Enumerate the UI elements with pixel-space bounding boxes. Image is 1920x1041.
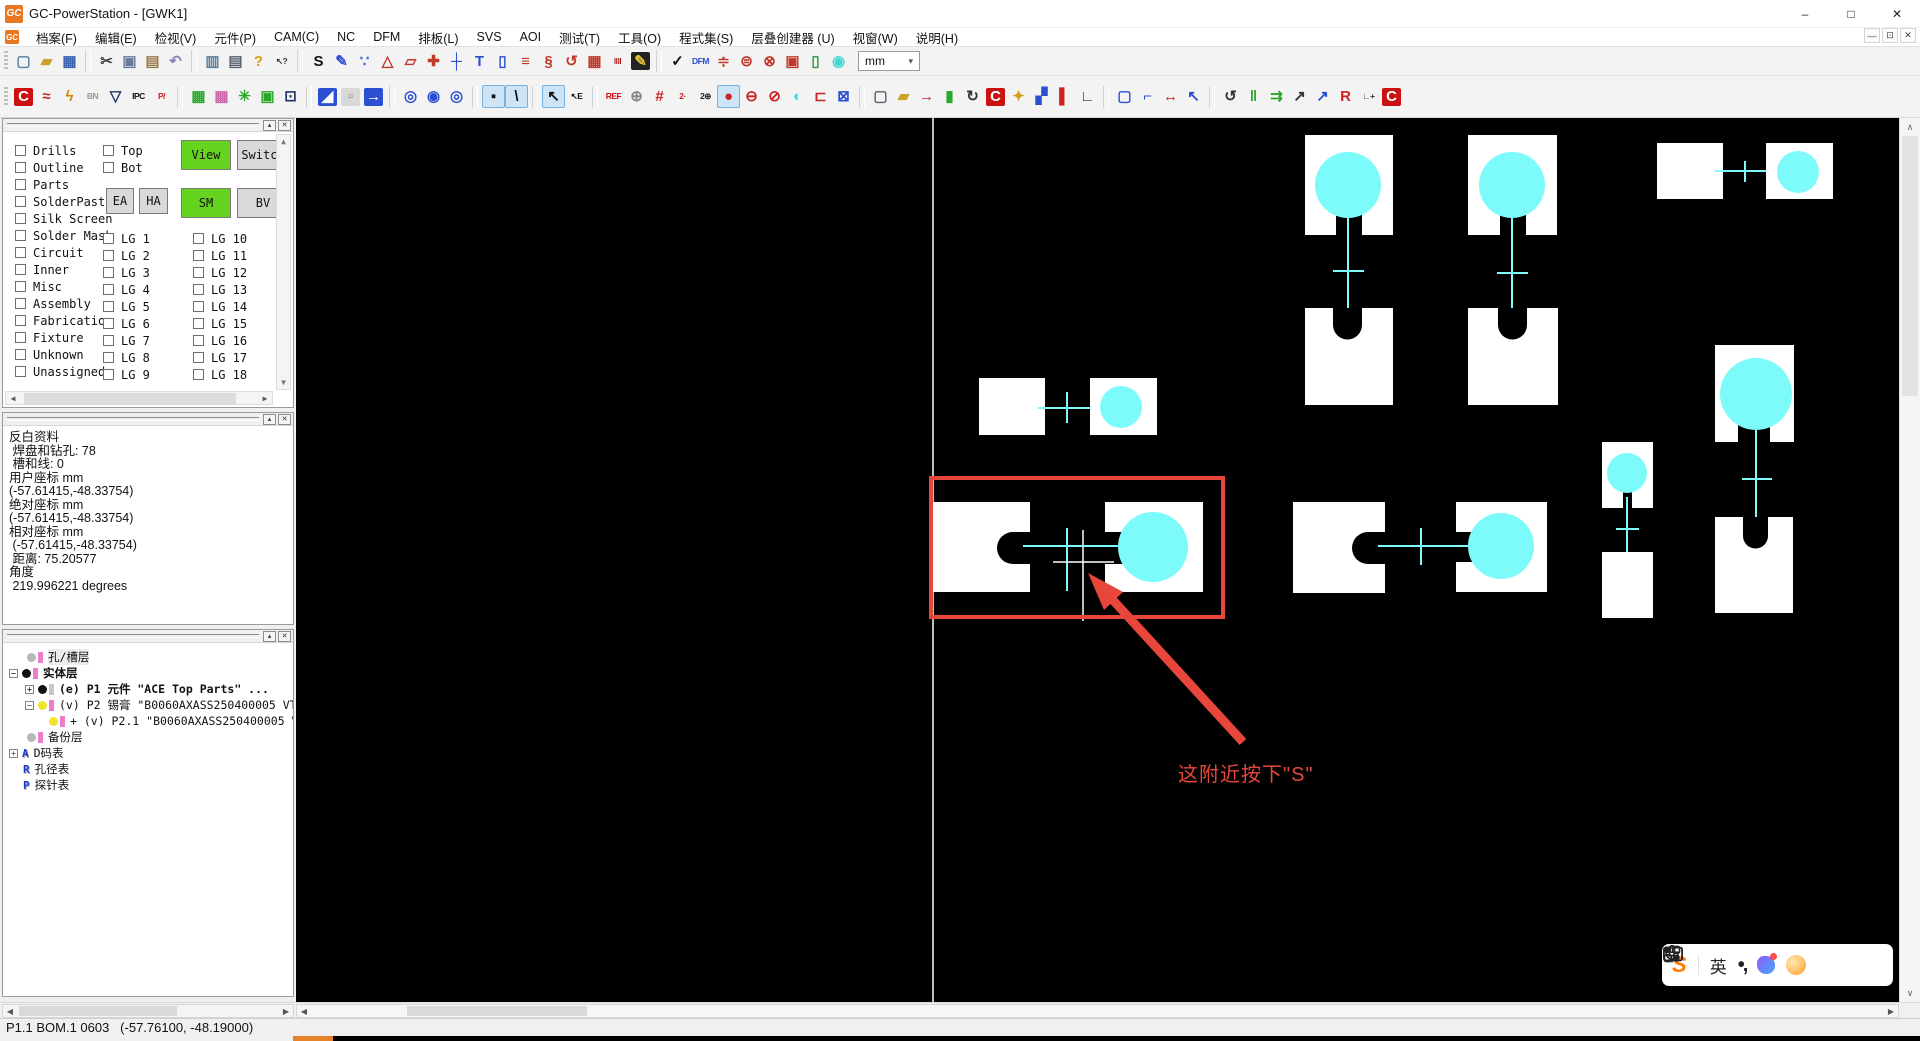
panel-grip[interactable] (7, 123, 259, 127)
pad-fill-cyan-button[interactable]: ◐ (786, 85, 809, 108)
barcode-button[interactable]: ‖‖ (606, 50, 629, 73)
collapse-minus-icon[interactable]: − (9, 669, 18, 678)
scrollbar-thumb[interactable] (1902, 136, 1918, 396)
scroll-right-icon[interactable]: ▶ (1884, 1005, 1898, 1017)
toolbar-main: ▢▰▦✂▣▤↶▥▤?↖?S✎∵△▱✚┼T▯≡§↺▦‖‖✎✓DFM≑⊜⊗▣▯◉ m… (0, 46, 1920, 76)
menu-part[interactable]: 元件(P) (205, 28, 265, 46)
checkbox-box[interactable] (15, 281, 26, 292)
layer-solderpaste-checkbox[interactable]: SolderPaste (15, 193, 112, 210)
checkbox-box[interactable] (15, 196, 26, 207)
mdi-restore-button[interactable]: ⊡ (1882, 28, 1898, 43)
layer-silk-screen-checkbox[interactable]: Silk Screen (15, 210, 112, 227)
layer-tree-panel: ▴ ✕ 孔/槽层 − 实体层 + (2, 629, 294, 997)
save-button[interactable]: ▦ (58, 50, 81, 73)
expand-plus-icon[interactable]: + (25, 685, 34, 694)
layer-misc-checkbox[interactable]: Misc (15, 278, 112, 295)
scroll-right-icon[interactable]: ▶ (258, 392, 272, 404)
layer-dot-icon (49, 717, 58, 726)
scroll-up-icon[interactable]: ▲ (277, 135, 290, 148)
menu-edit[interactable]: 编辑(E) (86, 28, 146, 46)
lg-left-list: LG 1LG 2LG 3LG 4LG 5LG 6LG 7LG 8LG 9 (103, 230, 150, 383)
c-net-button[interactable]: C (14, 88, 33, 106)
menubar: GC 档案(F)编辑(E)检视(V)元件(P)CAM(C)NCDFM排板(L)S… (0, 28, 1920, 46)
layer-category-list: DrillsOutlinePartsSolderPasteSilk Screen… (15, 142, 112, 380)
lg-2-checkbox[interactable]: LG 2 (103, 247, 150, 264)
layer-bar-icon (33, 668, 38, 679)
panel-grip[interactable] (7, 417, 259, 421)
scroll-down-icon[interactable]: ∨ (1901, 985, 1919, 1001)
cut-button[interactable]: ✂ (95, 50, 118, 73)
ipc-export-button[interactable]: IPC (127, 85, 150, 108)
chevron-down-icon: ▾ (908, 56, 913, 67)
layers-horizontal-scrollbar[interactable]: ◀ ▶ (5, 391, 273, 405)
spark-button[interactable]: ϟ (58, 85, 81, 108)
minimize-button[interactable]: – (1782, 0, 1828, 28)
toolbox-grid-icon[interactable] (1662, 944, 1682, 964)
copy-button[interactable]: ▣ (118, 50, 141, 73)
toolbar-separator (592, 86, 598, 108)
scroll-left-icon[interactable]: ◀ (3, 1005, 17, 1017)
inspect-pad-button[interactable]: ⊡ (279, 85, 302, 108)
scrollbar-thumb[interactable] (19, 1006, 177, 1016)
app-logo-icon: GC (5, 5, 23, 23)
checkbox-box[interactable] (15, 230, 26, 241)
lg-15-checkbox[interactable]: LG 15 (193, 315, 247, 332)
close-button[interactable]: ✕ (1874, 0, 1920, 28)
lg-3-checkbox[interactable]: LG 3 (103, 264, 150, 281)
text-tool-button[interactable]: T (468, 50, 491, 73)
scroll-up-icon[interactable]: ∧ (1901, 119, 1919, 135)
scrollbar-thumb[interactable] (407, 1006, 587, 1016)
status-text: P1.1 BOM.1 0603 (-57.76100, -48.19000) (0, 1020, 253, 1035)
lg-5-checkbox[interactable]: LG 5 (103, 298, 150, 315)
new-doc-button[interactable]: ▢ (869, 85, 892, 108)
layer-fixture-checkbox[interactable]: Fixture (15, 329, 112, 346)
checkbox-box[interactable] (193, 250, 204, 261)
workspace: ▴ ✕ DrillsOutlinePartsSolderPasteSilk Sc… (0, 118, 1920, 1002)
layer-bar-icon (38, 652, 43, 663)
panel-array-alt-button[interactable]: ▦ (210, 85, 233, 108)
import-door-button[interactable]: → (915, 85, 938, 108)
lg-7-checkbox[interactable]: LG 7 (103, 332, 150, 349)
tree-item-p2-1[interactable]: + (v) P2.1 "B0060AXASS250400005 V. (3, 713, 293, 729)
panel-close-button[interactable]: ✕ (278, 414, 291, 425)
view-full-button[interactable]: ◢ (318, 88, 337, 106)
target2-button[interactable]: 2⊕ (694, 85, 717, 108)
draw-pencil-button[interactable]: ✎ (330, 50, 353, 73)
lg-11-checkbox[interactable]: LG 11 (193, 247, 247, 264)
menu-cam[interactable]: CAM(C) (265, 28, 328, 46)
lg-18-checkbox[interactable]: LG 18 (193, 366, 247, 383)
window-title: GC-PowerStation - [GWK1] (29, 6, 187, 21)
strip-orange (293, 1036, 333, 1041)
net-compare-button[interactable]: ≈ (35, 85, 58, 108)
lg-6-checkbox[interactable]: LG 6 (103, 315, 150, 332)
checkbox-box[interactable] (103, 318, 114, 329)
transform-handles-button[interactable]: ↔ (1159, 85, 1182, 108)
c-stop-button[interactable]: C (1382, 88, 1401, 106)
checkbox-box[interactable] (15, 162, 26, 173)
menu-file[interactable]: 档案(F) (27, 28, 86, 46)
unit-value: mm (865, 54, 885, 68)
pad-line-left-button[interactable]: ⊖ (740, 85, 763, 108)
footprint-vertical-2 (1468, 135, 1558, 405)
menu-nc[interactable]: NC (328, 28, 364, 46)
axis-button[interactable]: ┼ (445, 50, 468, 73)
toolbar-separator (85, 50, 91, 72)
toolbar-separator (859, 86, 865, 108)
divider (1698, 955, 1699, 975)
polyline-button[interactable]: △ (376, 50, 399, 73)
panel-collapse-button[interactable]: ▴ (263, 631, 276, 642)
layer-dot-icon (38, 701, 47, 710)
toolbar-grip[interactable] (4, 51, 8, 71)
mdi-window-controls: — ⊡ ✕ (1864, 28, 1916, 46)
scroll-left-icon[interactable]: ◀ (6, 392, 20, 404)
sidebar-horizontal-scrollbar[interactable]: ◀ ▶ (2, 1004, 294, 1018)
footprint-vertical-right (1715, 345, 1794, 613)
lamp-button[interactable]: ✦ (1007, 85, 1030, 108)
tree-item-backup-layer[interactable]: 备份层 (3, 729, 293, 745)
filter-funnel-button[interactable]: ▽ (104, 85, 127, 108)
zoom-highlight-1-button[interactable]: ◎ (399, 85, 422, 108)
layer-assembly-checkbox[interactable]: Assembly (15, 295, 112, 312)
corner-arrow-button[interactable]: ↖ (1182, 85, 1205, 108)
tree-item-p2-paste[interactable]: − (v) P2 锡膏 "B0060AXASS250400005 VTP1 (3, 697, 293, 713)
tree-panel-header: ▴ ✕ (3, 630, 293, 643)
panel-collapse-button[interactable]: ▴ (263, 414, 276, 425)
help-button[interactable]: ? (247, 50, 270, 73)
rect-tool-button[interactable]: ▯ (491, 50, 514, 73)
toolbar-grip[interactable] (4, 87, 8, 107)
footprint-vertical-1 (1305, 135, 1393, 405)
checkbox-box[interactable] (193, 267, 204, 278)
numbering-button[interactable]: # (648, 85, 671, 108)
bn-tool-button[interactable]: BN (81, 85, 104, 108)
panel-close-button[interactable]: ✕ (278, 120, 291, 131)
panel-cursor-button[interactable]: ▌ (1053, 85, 1076, 108)
shrink-button[interactable]: § (537, 50, 560, 73)
scroll-left-icon[interactable]: ◀ (297, 1005, 311, 1017)
layer-bar-icon (49, 700, 54, 711)
language-toggle[interactable]: 英 (1710, 953, 1727, 978)
collapse-minus-icon[interactable]: − (25, 701, 34, 710)
lg-12-checkbox[interactable]: LG 12 (193, 264, 247, 281)
lg-17-checkbox[interactable]: LG 17 (193, 349, 247, 366)
droplet-button[interactable]: ◉ (827, 50, 850, 73)
save-layer-button[interactable]: ▦ (583, 50, 606, 73)
point-mode-button[interactable]: ▪ (482, 85, 505, 108)
layer-drills-checkbox[interactable]: Drills (15, 142, 112, 159)
layer-dot-icon (38, 685, 47, 694)
checkbox-box[interactable] (193, 352, 204, 363)
disc-lines-button[interactable]: ⊜ (735, 50, 758, 73)
tree-item-hole-layer[interactable]: 孔/槽层 (3, 649, 293, 665)
scroll-right-icon[interactable]: ▶ (279, 1005, 293, 1017)
menu-aoi[interactable]: AOI (511, 28, 551, 46)
checkbox-box[interactable] (15, 264, 26, 275)
corner-snap-button[interactable]: ⌐ (1136, 85, 1159, 108)
canvas-horizontal-scrollbar[interactable]: ◀ ▶ (296, 1004, 1899, 1018)
skin-icon[interactable] (1757, 956, 1775, 974)
checkbox-box[interactable] (103, 267, 114, 278)
rotate-ccw-button[interactable]: ↺ (1219, 85, 1242, 108)
pad-ellipse-button[interactable]: ● (717, 85, 740, 108)
chart-rise2-button[interactable]: ↗ (1311, 85, 1334, 108)
pad-pair-button[interactable]: ▣ (781, 50, 804, 73)
context-help-button[interactable]: ↖? (270, 50, 293, 73)
layer-unassigned-checkbox[interactable]: Unassigned (15, 363, 112, 380)
rotate-view-button[interactable]: ↻ (961, 85, 984, 108)
lg-9-checkbox[interactable]: LG 9 (103, 366, 150, 383)
thermal-burst-button[interactable]: ✳ (233, 85, 256, 108)
toolbar-separator (1209, 86, 1215, 108)
mdi-minimize-button[interactable]: — (1864, 28, 1880, 43)
menu-view[interactable]: 检视(V) (146, 28, 206, 46)
transform-button[interactable]: ✚ (422, 50, 445, 73)
ea-button[interactable]: EA (106, 188, 134, 214)
layer-dot-icon (27, 733, 36, 742)
canvas-vertical-scrollbar[interactable]: ∧ ∨ (1899, 118, 1920, 1002)
marker-pen-button[interactable]: ✎ (631, 52, 650, 70)
layer-dot-icon (27, 653, 36, 662)
annotation-text: 这附近按下"S" (1178, 758, 1314, 787)
punctuation-icon[interactable]: •, (1738, 954, 1747, 977)
titlebar: GC GC-PowerStation - [GWK1] – □ ✕ (0, 0, 1920, 28)
hole-table-icon: R (23, 763, 30, 776)
select-cursor-button[interactable]: ↖ (542, 85, 565, 108)
toolbar-separator (297, 50, 303, 72)
checkbox-box[interactable] (15, 315, 26, 326)
checkbox-box[interactable] (103, 145, 114, 156)
layer-outline-checkbox[interactable]: Outline (15, 159, 112, 176)
checkbox-box[interactable] (15, 366, 26, 377)
add-points-button[interactable]: ∵ (353, 50, 376, 73)
disc-mesh-button[interactable]: ⊗ (758, 50, 781, 73)
statusbar: P1.1 BOM.1 0603 (-57.76100, -48.19000) (0, 1018, 1920, 1036)
pad-open-right-button[interactable]: ⊏ (809, 85, 832, 108)
select-polygon-button[interactable]: ▱ (399, 50, 422, 73)
tree-item-probe-table[interactable]: P 探针表 (3, 777, 293, 793)
layer-fabrication-checkbox[interactable]: Fabrication (15, 312, 112, 329)
ref-grid-button[interactable]: REF (602, 85, 625, 108)
layer-bar-icon (49, 684, 54, 695)
print-button[interactable]: ▤ (224, 50, 247, 73)
new-file-button[interactable]: ▢ (12, 50, 35, 73)
side-bot-checkbox[interactable]: Bot (103, 159, 143, 176)
checkbox-box[interactable] (103, 233, 114, 244)
split-panels-button[interactable]: ▞ (1030, 85, 1053, 108)
bottom-scrollbar-row: ◀ ▶ ◀ ▶ (0, 1002, 1920, 1018)
lg-16-checkbox[interactable]: LG 16 (193, 332, 247, 349)
open-folder2-button[interactable]: ▰ (892, 85, 915, 108)
footprint-horizontal-left (979, 378, 1157, 435)
chart-rise-button[interactable]: ↗ (1288, 85, 1311, 108)
scrollbar-thumb[interactable] (24, 393, 236, 404)
checkbox-box[interactable] (193, 233, 204, 244)
panel-grip[interactable] (7, 634, 259, 638)
toolbar-separator (656, 50, 662, 72)
menu-test[interactable]: 测试(T) (550, 28, 609, 46)
lg-8-checkbox[interactable]: LG 8 (103, 349, 150, 366)
application-window: GC GC-PowerStation - [GWK1] – □ ✕ GC 档案(… (0, 0, 1920, 1041)
chart-add-button[interactable]: ∟+ (1357, 85, 1380, 108)
checkbox-box[interactable] (15, 349, 26, 360)
dcode-table-icon: A (22, 747, 29, 760)
c-marker-button[interactable]: C (986, 88, 1005, 106)
checkbox-box[interactable] (15, 247, 26, 258)
dfm-check-button[interactable]: DFM (689, 50, 712, 73)
align-columns-button[interactable]: ‖ (1242, 85, 1265, 108)
layer-circuit-checkbox[interactable]: Circuit (15, 244, 112, 261)
checkbox-box[interactable] (103, 250, 114, 261)
layer-side-list: TopBot (103, 142, 143, 176)
expand-plus-icon[interactable]: + (9, 749, 18, 758)
tree-item-p1-parts[interactable]: + (e) P1 元件 "ACE Top Parts" ... (3, 681, 293, 697)
menu-programs[interactable]: 程式集(S) (670, 28, 742, 46)
step2-button[interactable]: 2· (671, 85, 694, 108)
toolbar-secondary: C≈ϟBN▽IPCP/▦▦✳▣⊡◢▫→◎◉◎▪\↖↖EREF⊕#2·2⊕●⊖⊘◐… (0, 76, 1920, 118)
open-folder-button[interactable]: ▰ (35, 50, 58, 73)
checkbox-box[interactable] (103, 369, 114, 380)
toolbar-separator (306, 86, 312, 108)
layer-inner-checkbox[interactable]: Inner (15, 261, 112, 278)
layers-panel-header: ▴ ✕ (3, 119, 293, 132)
pcb-canvas[interactable]: 这附近按下"S" S 英 •, (296, 118, 1899, 1002)
mdi-close-button[interactable]: ✕ (1900, 28, 1916, 43)
checkbox-box[interactable] (103, 301, 114, 312)
toolbar-separator (472, 86, 478, 108)
checkbox-box[interactable] (103, 352, 114, 363)
lg-10-checkbox[interactable]: LG 10 (193, 230, 247, 247)
checkbox-box[interactable] (103, 284, 114, 295)
info-lines: 反白资料 焊盘和钻孔: 78 槽和线: 0用户座标 mm(-57.61415,-… (3, 426, 293, 624)
checkbox-box[interactable] (103, 335, 114, 346)
maximize-button[interactable]: □ (1828, 0, 1874, 28)
input-method-bar: S 英 •, (1662, 944, 1893, 986)
layers-panel: ▴ ✕ DrillsOutlinePartsSolderPasteSilk Sc… (2, 118, 294, 408)
undo-button[interactable]: ↶ (164, 50, 187, 73)
scroll-down-icon[interactable]: ▼ (277, 376, 290, 389)
checkbox-box[interactable] (15, 179, 26, 190)
menu-help[interactable]: 说明(H) (907, 28, 967, 46)
p-slash-button[interactable]: P/ (150, 85, 173, 108)
lg-14-checkbox[interactable]: LG 14 (193, 298, 247, 315)
toolbar-separator (191, 50, 197, 72)
layer-parts-checkbox[interactable]: Parts (15, 176, 112, 193)
tree-item-dcode-table[interactable]: + A D码表 (3, 745, 293, 761)
lg-4-checkbox[interactable]: LG 4 (103, 281, 150, 298)
footprint-horizontal-top-right (1657, 143, 1833, 199)
checkbox-box[interactable] (193, 318, 204, 329)
checkbox-box[interactable] (15, 145, 26, 156)
checkbox-box[interactable] (193, 284, 204, 295)
probe-table-icon: P (23, 779, 30, 792)
bottom-strip (0, 1036, 1920, 1041)
toolbar-separator (1103, 86, 1109, 108)
checkbox-box[interactable] (193, 301, 204, 312)
verify-check-button[interactable]: ✓ (666, 50, 689, 73)
toolbar-separator (177, 86, 183, 108)
pcb-graphics (296, 118, 1899, 1002)
footprint-horizontal-mid-right (1293, 502, 1547, 593)
lg-right-list: LG 10LG 11LG 12LG 13LG 14LG 15LG 16LG 17… (193, 230, 247, 383)
view-pan-button[interactable]: → (364, 88, 383, 106)
r-layers-button[interactable]: R (1334, 85, 1357, 108)
document-logo-icon[interactable]: GC (5, 30, 19, 44)
lg-13-checkbox[interactable]: LG 13 (193, 281, 247, 298)
side-top-checkbox[interactable]: Top (103, 142, 143, 159)
panel-close-button[interactable]: ✕ (278, 631, 291, 642)
distribute-button[interactable]: ⇉ (1265, 85, 1288, 108)
checkbox-box[interactable] (103, 162, 114, 173)
pad-in-frame-button[interactable]: ▣ (256, 85, 279, 108)
view-button[interactable]: View (181, 140, 231, 170)
strip-gray (0, 1036, 293, 1041)
snap-mode-button[interactable]: S (307, 50, 330, 73)
sm-button[interactable]: SM (181, 188, 231, 218)
zoom-highlight-2-button[interactable]: ◉ (422, 85, 445, 108)
checkbox-box[interactable] (15, 332, 26, 343)
tree-item-hole-table[interactable]: R 孔径表 (3, 761, 293, 777)
menu-window[interactable]: 视窗(W) (844, 28, 907, 46)
layer-bar-icon (60, 716, 65, 727)
report-button[interactable]: ▥ (201, 50, 224, 73)
pad-line-mid-button[interactable]: ⊘ (763, 85, 786, 108)
layer-solder-mask-checkbox[interactable]: Solder Mask (15, 227, 112, 244)
layer-stack-button[interactable]: ≡ (514, 50, 537, 73)
sphere-button[interactable]: ⊕ (625, 85, 648, 108)
select-edit-button[interactable]: ↖E (565, 85, 588, 108)
footprint-selected (930, 502, 1203, 621)
ha-button[interactable]: HA (139, 188, 168, 214)
layer-unknown-checkbox[interactable]: Unknown (15, 346, 112, 363)
layer-dot-icon (22, 669, 31, 678)
checkbox-box[interactable] (193, 369, 204, 380)
outline-rect-button[interactable]: ▯ (804, 50, 827, 73)
panel-collapse-button[interactable]: ▴ (263, 120, 276, 131)
panel-array-button[interactable]: ▦ (187, 85, 210, 108)
select-rect-dashed-button[interactable]: ▢ (1113, 85, 1136, 108)
menu-tools[interactable]: 工具(O) (609, 28, 670, 46)
unit-dropdown[interactable]: mm ▾ (858, 51, 920, 71)
rotate-sel-button[interactable]: ↺ (560, 50, 583, 73)
paste-button[interactable]: ▤ (141, 50, 164, 73)
compare-stack-button[interactable]: ≑ (712, 50, 735, 73)
tree-item-entity-layer[interactable]: − 实体层 (3, 665, 293, 681)
layers-vertical-scrollbar[interactable]: ▲ ▼ (276, 134, 291, 390)
pad-cross-frame-button[interactable]: ⊠ (832, 85, 855, 108)
menu-stackup[interactable]: 层叠创建器 (U) (742, 28, 843, 46)
line-mode-button[interactable]: \ (505, 85, 528, 108)
green-panel-button[interactable]: ▮ (938, 85, 961, 108)
menu-dfm[interactable]: DFM (364, 28, 409, 46)
measure-axis-button[interactable]: ∟ (1076, 85, 1099, 108)
checkbox-box[interactable] (193, 335, 204, 346)
checkbox-box[interactable] (15, 213, 26, 224)
toolbar-separator (389, 86, 395, 108)
menu-svs[interactable]: SVS (468, 28, 511, 46)
footprint-vertical-small (1602, 442, 1653, 618)
emoji-icon[interactable] (1786, 955, 1806, 975)
toolbar-separator (532, 86, 538, 108)
lg-1-checkbox[interactable]: LG 1 (103, 230, 150, 247)
zoom-highlight-3-button[interactable]: ◎ (445, 85, 468, 108)
checkbox-box[interactable] (15, 298, 26, 309)
view-grid-button[interactable]: ▫ (341, 88, 360, 106)
annotation-arrow (1088, 573, 1243, 742)
menu-layout[interactable]: 排板(L) (409, 28, 467, 46)
